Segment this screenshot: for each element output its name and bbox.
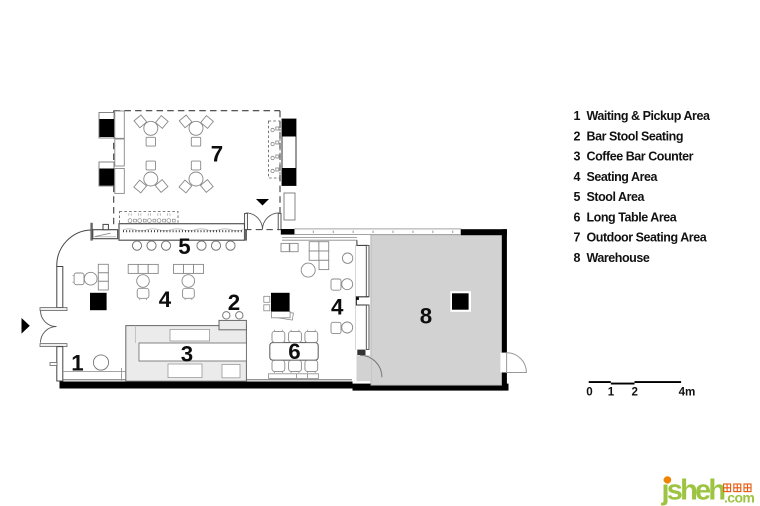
svg-text:6: 6 — [573, 210, 580, 224]
svg-text:0: 0 — [586, 385, 592, 398]
svg-text:8: 8 — [573, 251, 580, 265]
svg-text:Stool Area: Stool Area — [587, 190, 646, 204]
svg-text:3: 3 — [573, 150, 580, 164]
svg-text:Waiting & Pickup Area: Waiting & Pickup Area — [587, 109, 711, 123]
svg-text:4: 4 — [159, 287, 172, 312]
svg-text:7: 7 — [573, 231, 580, 245]
svg-text:1: 1 — [608, 385, 615, 398]
svg-text:Coffee Bar Counter: Coffee Bar Counter — [587, 150, 694, 164]
svg-text:1: 1 — [71, 351, 83, 376]
svg-text:4: 4 — [331, 295, 344, 320]
svg-text:7: 7 — [211, 142, 223, 167]
svg-text:4m: 4m — [679, 385, 696, 398]
svg-text:2: 2 — [631, 385, 637, 398]
svg-text:Seating Area: Seating Area — [587, 170, 659, 184]
svg-text:2: 2 — [573, 129, 580, 143]
svg-text:1: 1 — [573, 109, 580, 123]
svg-text:Long Table Area: Long Table Area — [587, 210, 678, 224]
svg-text:5: 5 — [573, 190, 580, 204]
svg-text:8: 8 — [420, 304, 432, 329]
svg-text:5: 5 — [178, 234, 190, 259]
svg-text:3: 3 — [181, 342, 193, 367]
svg-text:4: 4 — [573, 170, 580, 184]
svg-text:Bar Stool Seating: Bar Stool Seating — [587, 129, 684, 143]
svg-text:Warehouse: Warehouse — [587, 251, 650, 265]
svg-text:6: 6 — [288, 339, 300, 364]
svg-text:Outdoor Seating Area: Outdoor Seating Area — [587, 231, 708, 245]
